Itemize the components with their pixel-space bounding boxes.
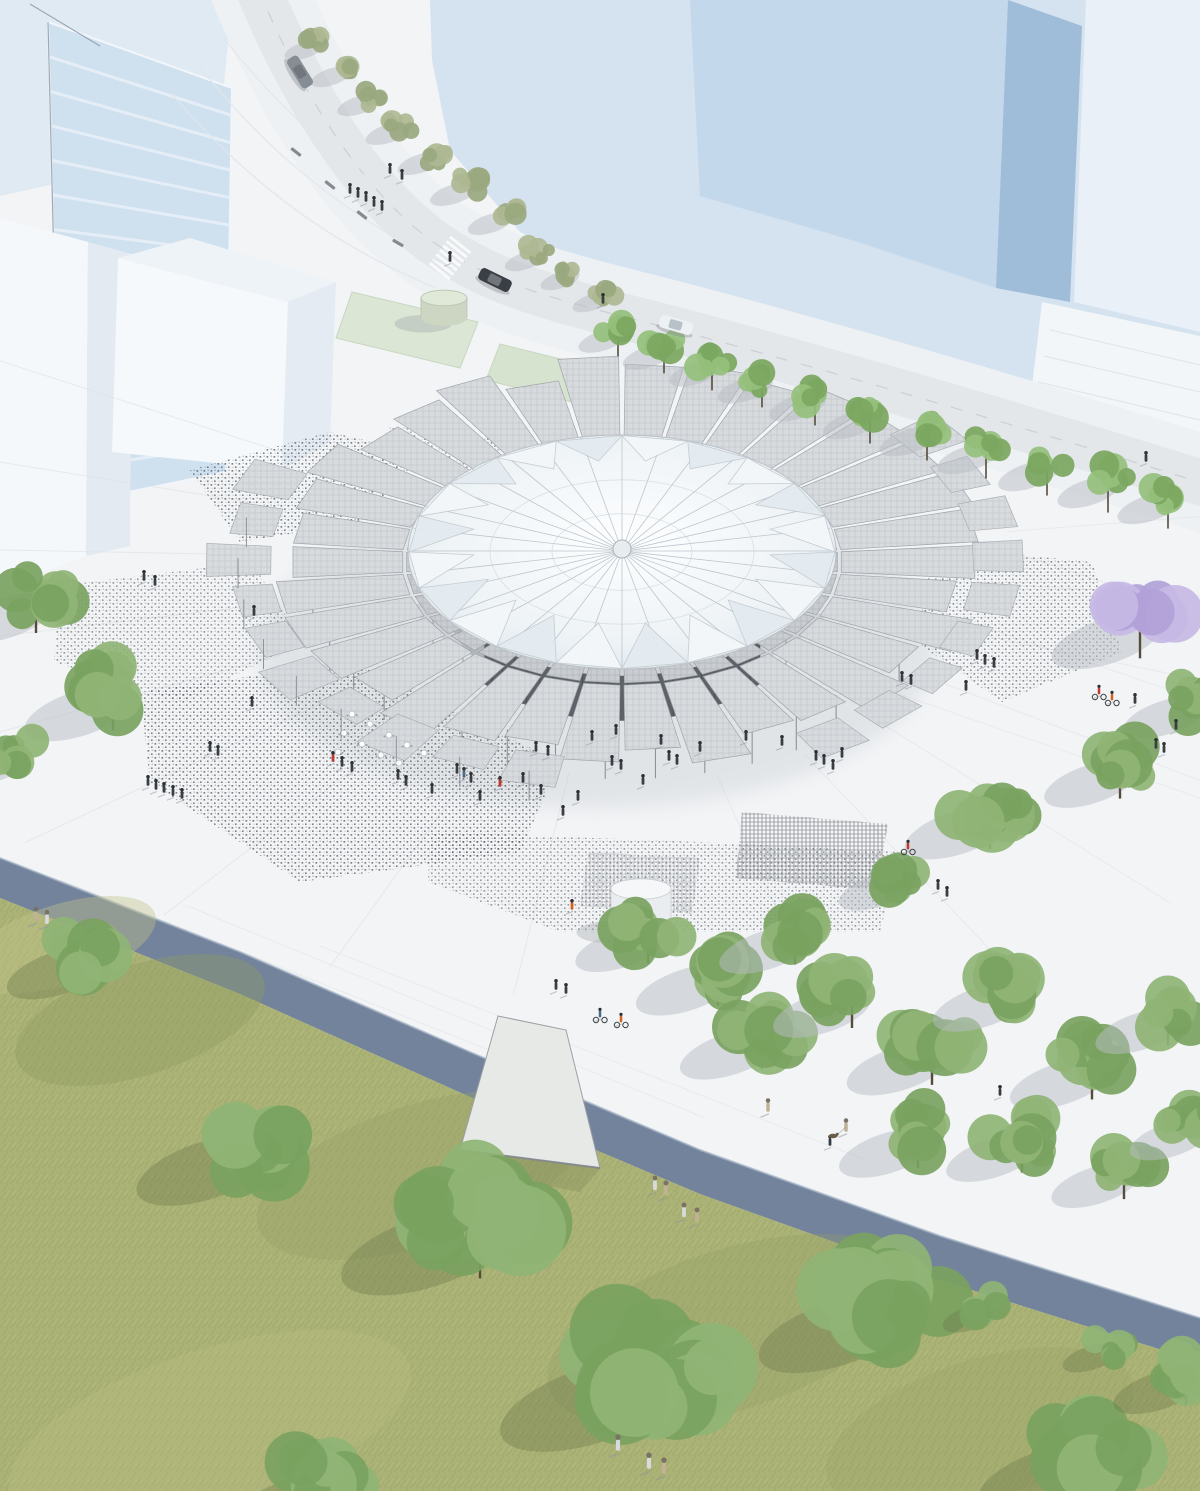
scene-layers: [0, 0, 1200, 1491]
dome-hub: [613, 540, 631, 558]
white-building-left: [0, 218, 88, 588]
architectural-rendering: [0, 0, 1200, 1491]
tr-building-b: [1074, 0, 1200, 332]
tr-building-a-face: [996, 0, 1082, 302]
scene-svg: [0, 0, 1200, 1491]
paving-grid-dense: [736, 812, 888, 890]
